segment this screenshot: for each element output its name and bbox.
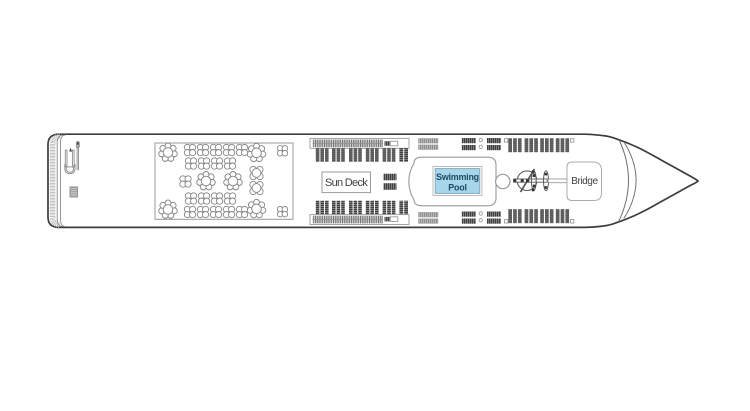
svg-text:Bridge: Bridge bbox=[571, 176, 598, 187]
svg-text:Sun Deck: Sun Deck bbox=[325, 177, 368, 189]
svg-text:Pool: Pool bbox=[448, 183, 466, 193]
svg-text:Swimming: Swimming bbox=[436, 172, 479, 182]
